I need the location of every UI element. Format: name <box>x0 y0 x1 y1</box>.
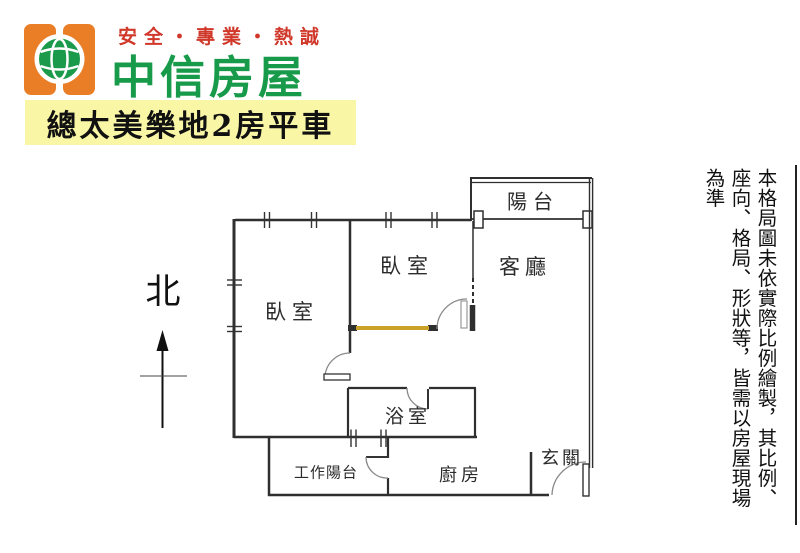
north-label: 北 <box>145 264 180 315</box>
room-label-entryway: 玄關 <box>541 444 583 470</box>
room-label-bedroom-left: 臥室 <box>265 296 319 326</box>
right-edge-rule <box>795 165 797 525</box>
room-label-kitchen: 廚房 <box>439 461 483 487</box>
disclaimer-text: 本格局圖未依實際比例繪製，其比例、座向、格局、形狀等，皆需以房屋現場為準 <box>700 168 778 526</box>
room-label-bathroom: 浴室 <box>385 402 431 429</box>
walls <box>234 178 593 496</box>
room-label-utility-balcony: 工作陽台 <box>294 462 358 483</box>
room-label-bedroom-middle: 臥室 <box>380 250 434 280</box>
room-label-living-room: 客廳 <box>499 251 551 281</box>
room-label-balcony: 陽台 <box>507 186 559 215</box>
page: 安全・專業・熱誠 中信房屋 總太美樂地2房平車 <box>0 0 800 553</box>
north-arrow-icon <box>140 330 187 428</box>
